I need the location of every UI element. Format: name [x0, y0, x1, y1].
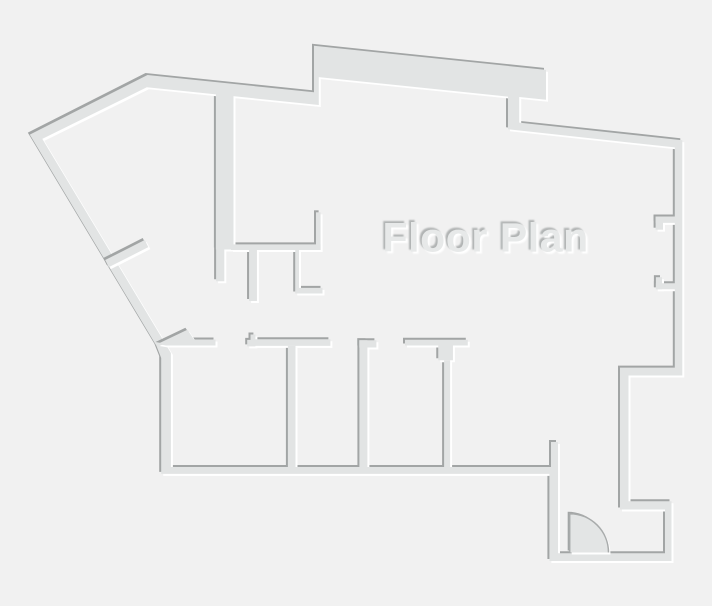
svg-text:Floor Plan: Floor Plan: [383, 215, 589, 261]
